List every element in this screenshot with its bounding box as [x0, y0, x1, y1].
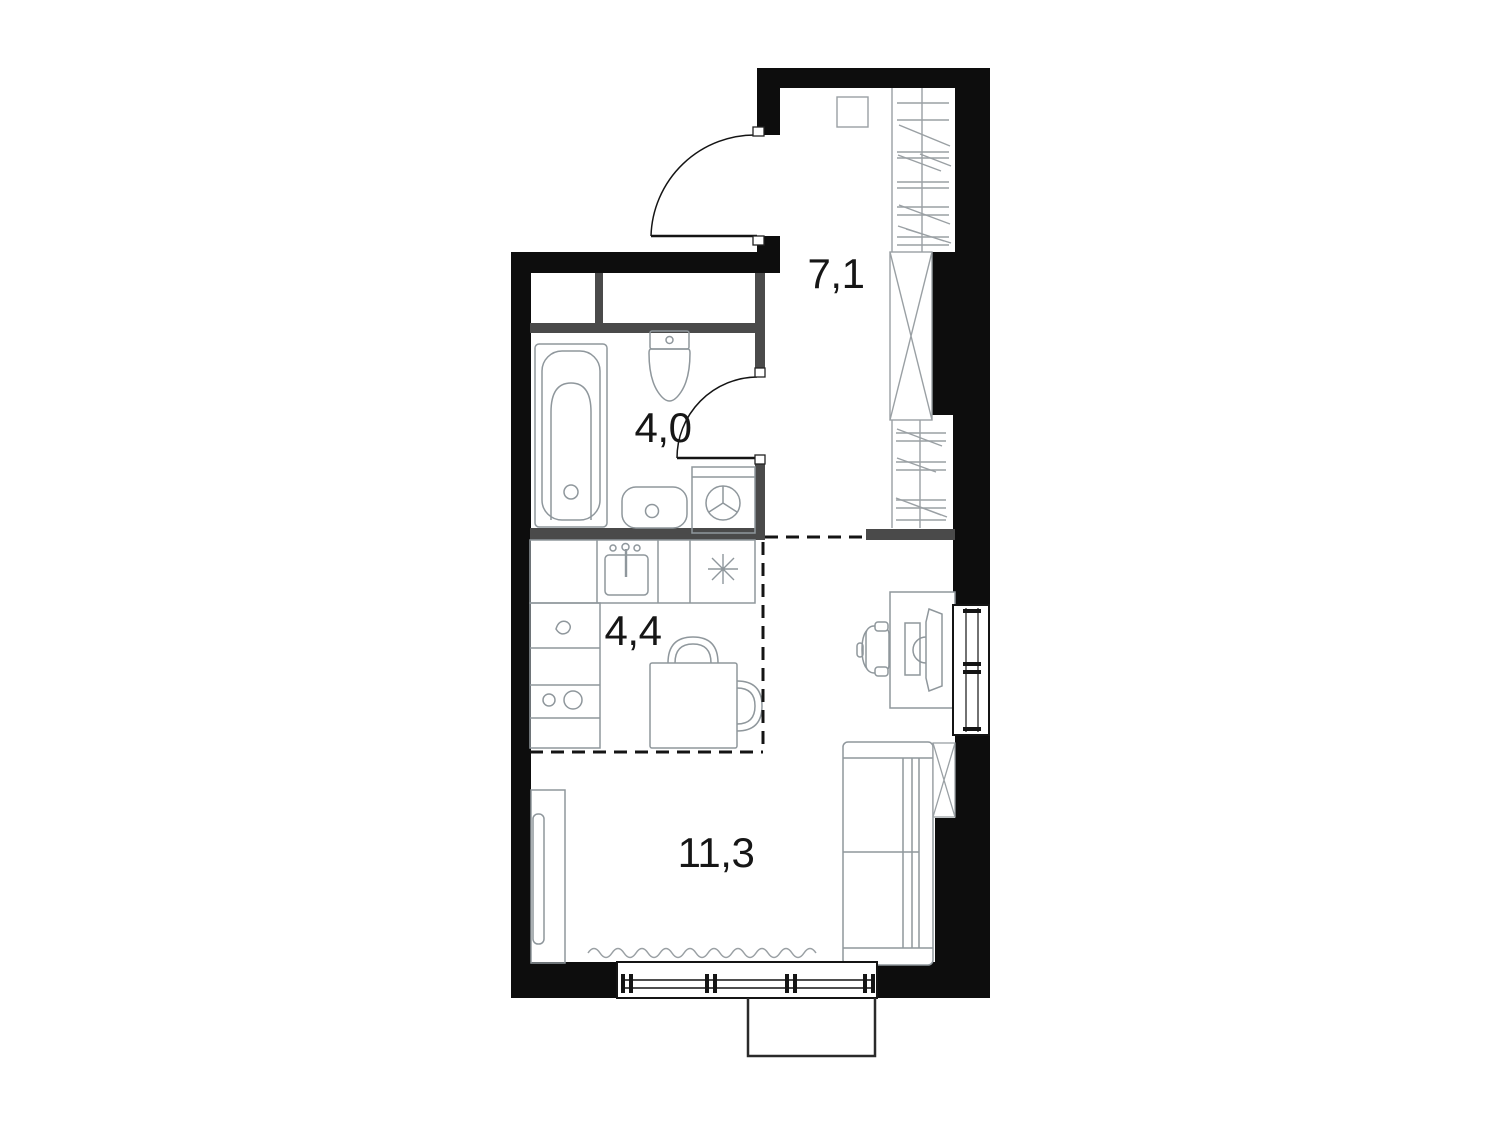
wall-right-lower	[955, 735, 990, 818]
entrance-door-swing-arc	[651, 135, 757, 236]
wardrobe-shelves-upper	[892, 88, 951, 252]
room-labels: 7,1 4,0 4,4 11,3	[605, 250, 865, 876]
dining-chair-right	[737, 681, 762, 731]
room-label-living-room: 11,3	[678, 829, 755, 876]
room-label-hallway: 7,1	[808, 250, 865, 297]
partition-bath-mid	[530, 323, 765, 333]
sofa	[843, 742, 933, 965]
cooker-hood-symbol	[708, 554, 738, 584]
kitchen-sink	[605, 544, 648, 596]
toilet	[649, 331, 690, 401]
counter-drain-symbol	[556, 621, 570, 634]
side-table	[933, 743, 955, 817]
wall-left	[511, 252, 531, 998]
partition-hall-bottom	[866, 529, 955, 540]
entrance-door-jamb-pad-top	[753, 127, 764, 136]
bathtub	[535, 344, 607, 527]
wall-right-shaft	[932, 252, 990, 415]
wall-bottom-left	[511, 962, 617, 998]
partition-bath-right-lower	[755, 464, 765, 528]
washing-machine	[692, 467, 755, 533]
wardrobe-shelves-lower	[892, 420, 947, 528]
window-bottom	[617, 962, 877, 998]
cooktop-burner-small	[543, 694, 555, 706]
wall-entry-jamb-upper	[757, 68, 780, 135]
bathroom-door-jamb-pad-top	[755, 368, 765, 377]
partition-bath-niche-divider	[595, 273, 603, 323]
entrance-door	[651, 127, 764, 245]
wardrobe-hanging-section	[890, 252, 932, 420]
office-chair	[857, 622, 889, 676]
electrical-box	[837, 97, 868, 127]
wall-right-upper	[955, 68, 990, 252]
room-label-kitchen: 4,4	[605, 607, 662, 654]
kitchen-counter-side	[530, 603, 600, 748]
window-right	[953, 605, 989, 735]
partition-bath-bottom	[530, 528, 765, 540]
floor-plan-drawing: 7,1 4,0 4,4 11,3	[0, 0, 1500, 1125]
balcony-outline	[748, 998, 875, 1056]
wall-bottom-right	[875, 962, 990, 998]
dining-chair-top	[668, 637, 718, 663]
desk	[890, 592, 955, 708]
bathroom-door-jamb-pad-bottom	[755, 455, 765, 464]
wall-bathroom-top	[511, 252, 780, 273]
partition-bath-right-upper	[755, 273, 765, 368]
entrance-door-jamb-pad-bottom	[753, 236, 764, 245]
tv	[533, 814, 544, 944]
tv-stand	[531, 790, 565, 963]
bathtub-drain	[564, 485, 578, 499]
floor-plan-page: 7,1 4,0 4,4 11,3	[0, 0, 1500, 1125]
bathroom-sink	[622, 487, 687, 528]
room-label-bathroom: 4,0	[635, 404, 692, 451]
workspace	[857, 592, 955, 708]
cooktop-burner-large	[564, 691, 582, 709]
dining-table	[650, 663, 737, 748]
wall-right-mid	[953, 415, 990, 605]
curtain-wave-line	[588, 949, 816, 958]
